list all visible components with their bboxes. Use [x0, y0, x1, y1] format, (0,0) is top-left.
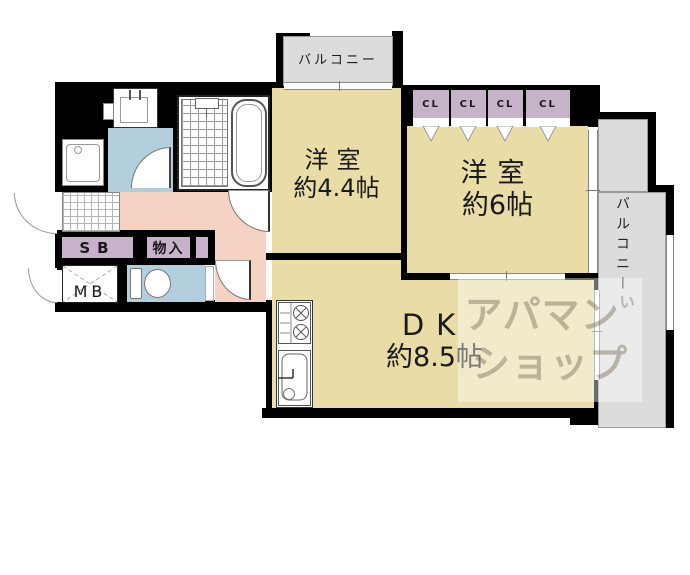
wall-service-bottom — [55, 302, 215, 312]
floor-plan: バルコニー バルコニー SB 物入 MB — [0, 0, 690, 575]
meter-box: MB — [62, 265, 118, 303]
window-room6-right — [588, 130, 598, 273]
watermark-line2: ショップ — [472, 340, 628, 389]
toilet-bowl — [144, 269, 171, 298]
window-balcony-top — [284, 82, 392, 90]
wall-balcony-top-right — [392, 31, 403, 90]
vanity-mirror — [120, 97, 148, 123]
wall-sb-storage-gap — [133, 230, 147, 265]
closet-door-pivot-icon-1 — [422, 126, 440, 142]
wall-left-seg1 — [55, 230, 62, 270]
entrance-tiles — [62, 192, 120, 232]
closet-cl-4-label: CL — [539, 99, 557, 110]
shoe-box-label: SB — [79, 239, 115, 257]
wall-balcony-r-right1 — [666, 185, 674, 235]
washing-machine-drain-icon — [74, 146, 82, 154]
door-arc-entrance — [14, 193, 57, 234]
bath-faucet-icon — [195, 98, 219, 109]
closet-door-pivot-icon-4 — [539, 126, 557, 142]
room6-size: 約6帖 — [462, 190, 533, 222]
vanity-faucet-icon — [129, 90, 131, 100]
closet-cl-2-label: CL — [460, 99, 478, 110]
bath-faucet-spout-icon — [206, 109, 207, 118]
room44-size: 約4.4帖 — [293, 174, 379, 202]
storage-label: 物入 — [153, 238, 185, 258]
balcony-railing — [666, 235, 674, 330]
storage-stub — [196, 237, 208, 258]
wall-balcony-r-right2 — [666, 330, 674, 428]
room6-name: 洋室 — [461, 158, 535, 190]
window-tick-balcony-top — [339, 81, 340, 91]
wall-balcony-r-upper-right — [648, 112, 656, 192]
vanity-faucet-icon2 — [139, 90, 141, 100]
storage-box: 物入 — [147, 237, 190, 258]
bathtub-inner-line — [236, 104, 262, 182]
closet-door-pivot-icon-2 — [459, 126, 477, 142]
washing-machine — [66, 144, 100, 182]
balcony-top: バルコニー — [283, 36, 393, 86]
room44-label: 洋室 約4.4帖 — [272, 140, 401, 208]
bathtub — [231, 99, 267, 187]
bathroom-floor-tiles — [181, 99, 228, 187]
shoe-box: SB — [62, 237, 133, 258]
vanity-side-tab — [103, 103, 114, 120]
wall-dk-bottom — [262, 408, 603, 418]
balcony-right-upper — [598, 119, 648, 192]
watermark-text1: アパマン — [464, 291, 619, 340]
closet-cl-1: CL — [413, 90, 449, 118]
room44-name: 洋室 — [305, 146, 369, 174]
closet-cl-2: CL — [451, 90, 486, 118]
wall-room44-dk — [266, 253, 407, 260]
room6-label: 洋室 約6帖 — [407, 152, 588, 228]
closet-door-pivot-icon-3 — [496, 126, 514, 142]
door-arc-meter-box — [28, 268, 57, 303]
wall-mb-toilet — [118, 265, 127, 302]
stove-icon — [278, 302, 311, 344]
closet-cl-4: CL — [526, 90, 570, 118]
meter-box-label: MB — [63, 282, 117, 302]
closet-cl-3-label: CL — [497, 99, 515, 110]
closet-cl-1-label: CL — [422, 99, 440, 110]
watermark: アパマン い ショップ — [458, 278, 642, 402]
closet-cl-3: CL — [488, 90, 523, 118]
balcony-top-label: バルコニー — [298, 53, 378, 68]
watermark-accent: い — [620, 293, 636, 313]
toilet-tank — [130, 268, 142, 299]
watermark-line1: アパマン い — [464, 291, 635, 340]
toilet-door — [205, 266, 214, 301]
sink-icon — [278, 350, 311, 406]
window-tick-room6-right — [586, 190, 600, 191]
